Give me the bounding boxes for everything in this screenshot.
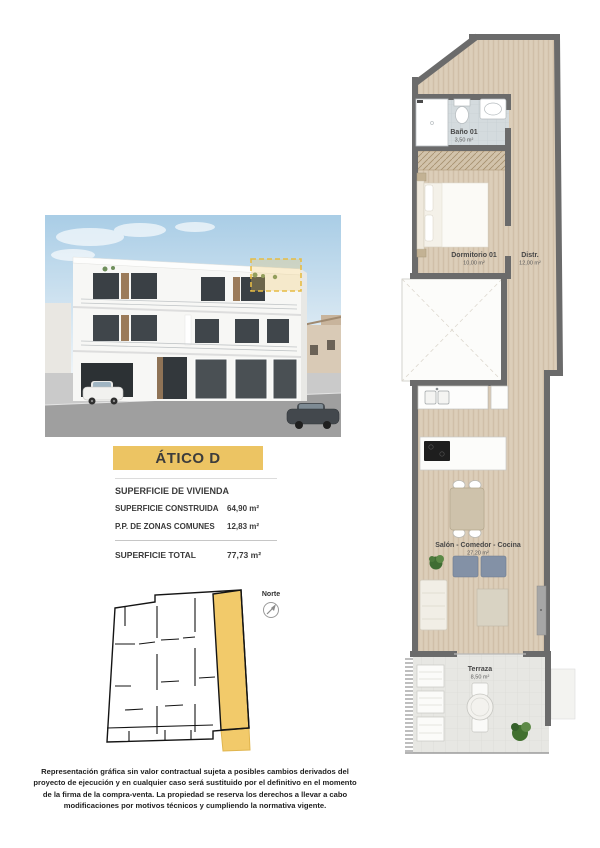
light-well-void xyxy=(402,279,502,381)
wardrobe xyxy=(417,151,507,170)
room-name: Terraza xyxy=(468,666,492,673)
highlighted-unit xyxy=(213,590,250,751)
terrace-sliding-door xyxy=(537,586,546,635)
unit-title-banner: ÁTICO D xyxy=(113,446,263,470)
terrace-railing xyxy=(405,657,413,753)
room-name: Baño 01 xyxy=(450,129,477,136)
table-total-row: SUPERFICIE TOTAL 77,73 m² xyxy=(115,550,277,560)
building-render xyxy=(45,215,341,437)
bathroom-sink xyxy=(480,99,506,119)
total-label: SUPERFICIE TOTAL xyxy=(115,550,227,560)
table-row: P.P. DE ZONAS COMUNES 12,83 m² xyxy=(115,522,277,531)
row-label: SUPERFICIE CONSTRUIDA xyxy=(115,504,227,513)
floor-plan: Baño 01 3,50 m² Dormitorio 01 10,00 m² D… xyxy=(398,33,578,765)
surface-table: SUPERFICIE DE VIVIENDA SUPERFICIE CONSTR… xyxy=(115,478,277,560)
bed xyxy=(417,173,488,257)
legal-disclaimer: Representación gráfica sin valor contrac… xyxy=(32,766,358,812)
adjacent-roof xyxy=(551,669,575,719)
room-area: 10,00 m² xyxy=(463,261,485,267)
atico-highlight-box xyxy=(251,259,301,291)
room-area: 12,00 m² xyxy=(519,261,541,267)
kitchen-counter xyxy=(418,386,508,409)
dining-table xyxy=(450,481,484,538)
terrace-lounge-chairs xyxy=(417,665,444,741)
shower xyxy=(416,99,448,146)
row-value: 64,90 m² xyxy=(227,504,277,513)
kitchen-island xyxy=(420,437,506,470)
surface-table-header: SUPERFICIE DE VIVIENDA xyxy=(115,486,277,496)
toilet xyxy=(454,99,470,124)
north-label: Norte xyxy=(262,591,280,598)
room-area: 8,50 m² xyxy=(471,675,490,681)
row-value: 12,83 m² xyxy=(227,522,277,531)
room-area: 3,50 m² xyxy=(455,138,474,144)
table-divider xyxy=(115,540,277,541)
room-name: Salón - Comedor - Cocina xyxy=(435,542,521,549)
unit-title: ÁTICO D xyxy=(155,450,220,467)
room-name: Distr. xyxy=(521,252,539,259)
key-plan: Norte xyxy=(95,582,290,760)
row-label: P.P. DE ZONAS COMUNES xyxy=(115,522,227,531)
total-value: 77,73 m² xyxy=(227,550,277,560)
brochure-page: ÁTICO D SUPERFICIE DE VIVIENDA SUPERFICI… xyxy=(0,0,600,848)
north-compass: Norte xyxy=(262,591,280,618)
room-area: 27,20 m² xyxy=(467,551,489,557)
room-name: Dormitorio 01 xyxy=(451,252,497,259)
table-row: SUPERFICIE CONSTRUIDA 64,90 m² xyxy=(115,504,277,513)
